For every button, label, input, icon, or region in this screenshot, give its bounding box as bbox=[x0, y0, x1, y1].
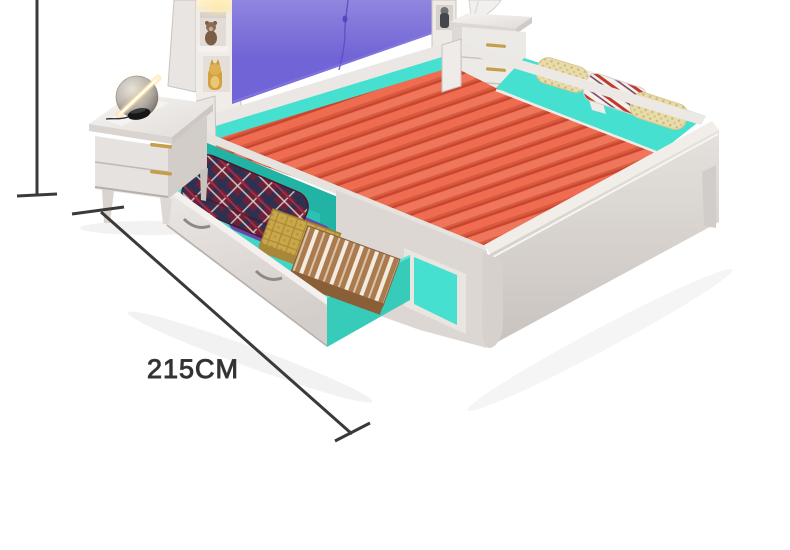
footboard-leg-left bbox=[482, 252, 503, 348]
toy-figurine bbox=[440, 7, 449, 28]
headboard-left-stile bbox=[168, 0, 196, 92]
dimension-label: 215CM bbox=[147, 354, 239, 384]
product-photo: 215CM bbox=[0, 0, 790, 550]
footboard-leg-right bbox=[702, 165, 716, 228]
shelf-board bbox=[198, 46, 228, 52]
corner-post-right bbox=[442, 39, 461, 92]
teddy-bear-figurine bbox=[205, 21, 217, 46]
length-dimension-tick bbox=[335, 423, 370, 441]
length-dimension-tick bbox=[72, 207, 124, 214]
height-dimension-tick bbox=[17, 194, 57, 196]
cushion-button bbox=[343, 16, 348, 23]
